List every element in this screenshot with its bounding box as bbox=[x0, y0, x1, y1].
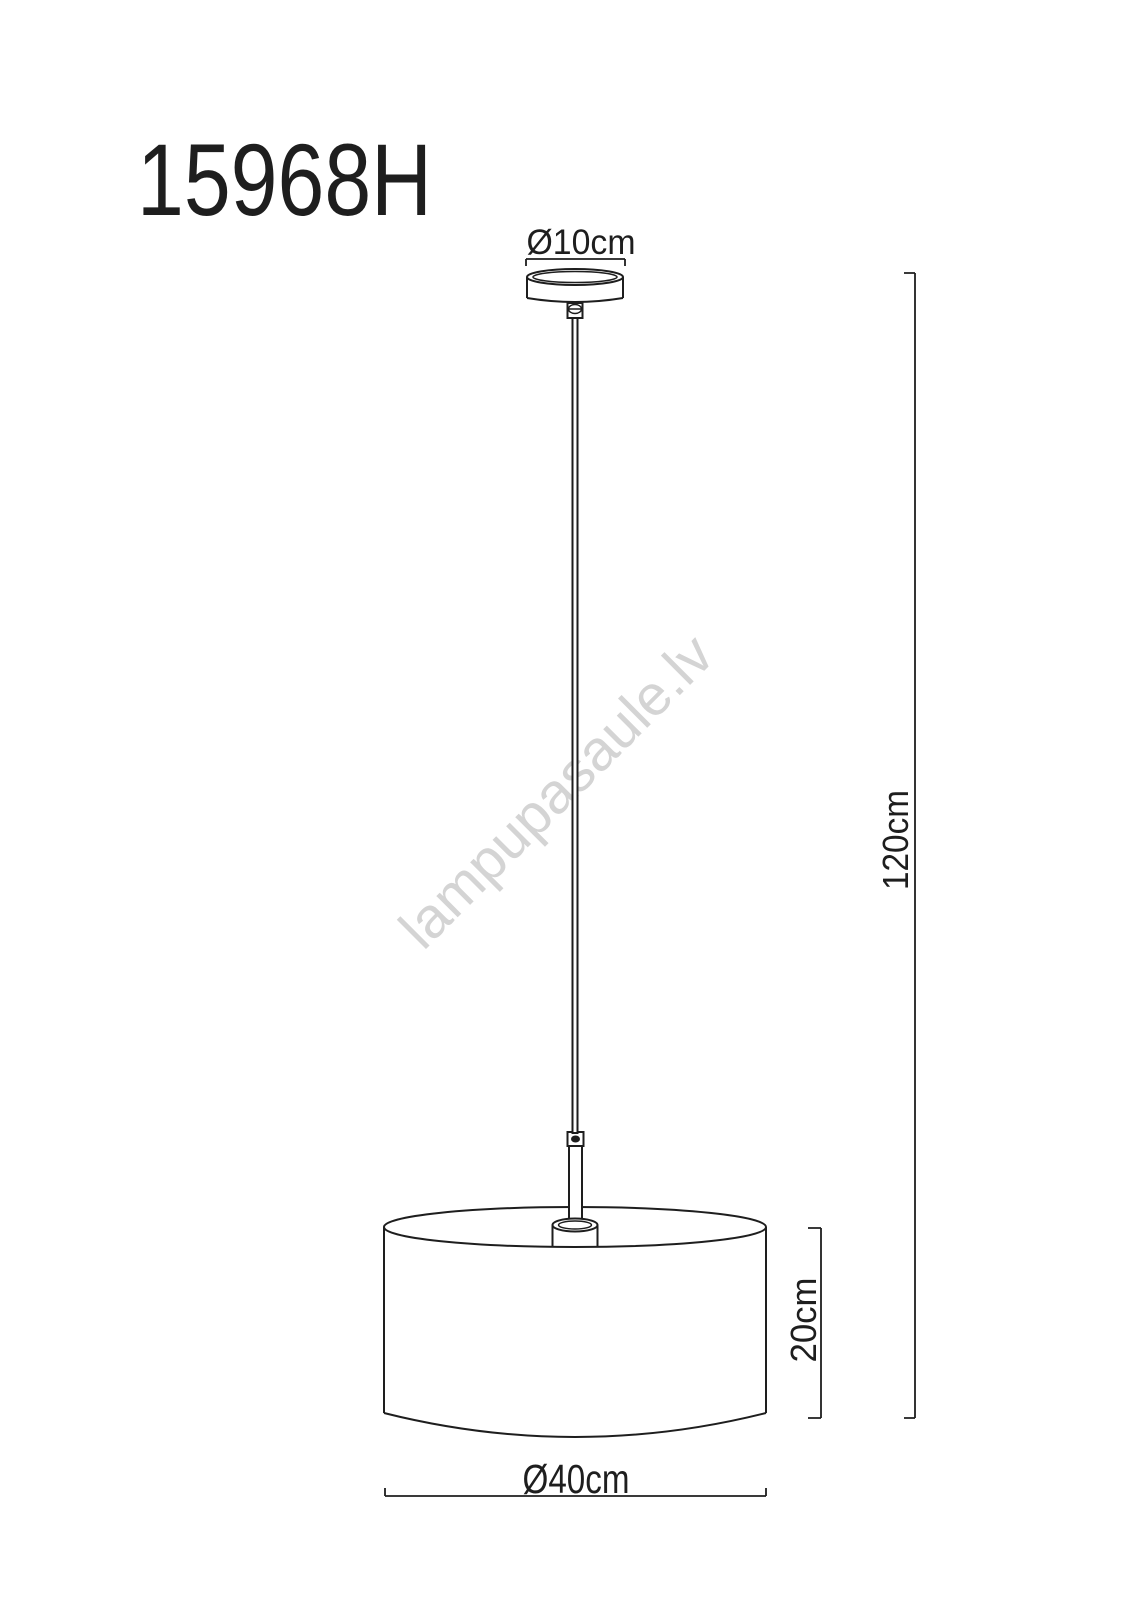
connector-body bbox=[569, 1145, 582, 1223]
rod-connector bbox=[568, 1132, 584, 1223]
suspension-rod bbox=[573, 315, 578, 1133]
canopy-diameter-label: Ø10cm bbox=[527, 223, 636, 262]
ceiling-canopy bbox=[527, 269, 623, 302]
canopy-fitting bbox=[568, 303, 583, 318]
dimension-canopy-diameter: Ø10cm bbox=[526, 223, 636, 266]
dimension-shade-diameter: Ø40cm bbox=[385, 1456, 766, 1502]
page-title: 15968H bbox=[137, 123, 432, 237]
shade-height-label: 20cm bbox=[783, 1278, 824, 1363]
shade-diameter-label: Ø40cm bbox=[523, 1456, 630, 1502]
drawing-page: lampupasaule.lv 15968H bbox=[0, 0, 1131, 1600]
drum-shade bbox=[384, 1207, 766, 1437]
canopy-bottom-edge bbox=[527, 298, 623, 302]
shade-bottom-edge bbox=[384, 1413, 766, 1437]
connector-set-screw bbox=[571, 1136, 580, 1143]
watermark-text: lampupasaule.lv bbox=[387, 622, 726, 961]
total-height-label: 120cm bbox=[875, 790, 916, 890]
dimension-shade-height: 20cm bbox=[783, 1228, 824, 1418]
dimension-total-height: 120cm bbox=[875, 273, 916, 1418]
lamp-socket bbox=[553, 1219, 598, 1248]
